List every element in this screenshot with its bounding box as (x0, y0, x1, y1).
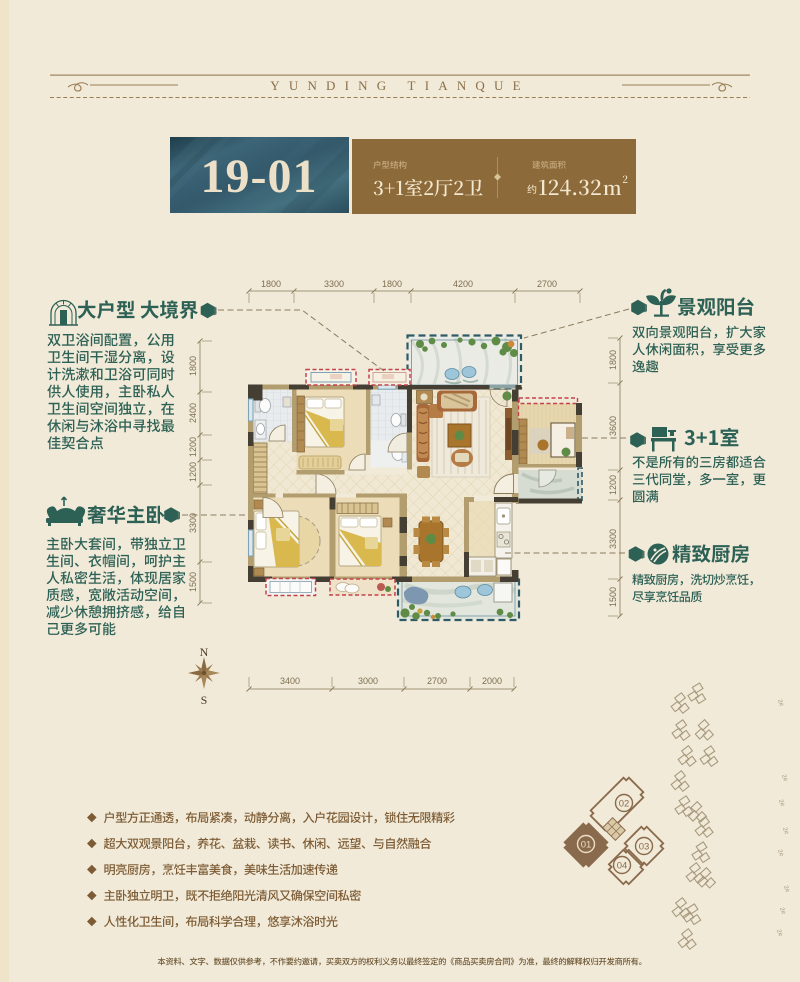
svg-text:2700: 2700 (427, 676, 447, 686)
svg-text:3300: 3300 (608, 529, 618, 549)
svg-text:2#: 2# (780, 774, 788, 783)
svg-text:2000: 2000 (482, 676, 502, 686)
svg-text:01: 01 (581, 840, 592, 851)
svg-text:1800: 1800 (608, 350, 618, 370)
svg-text:1200: 1200 (188, 437, 198, 457)
svg-text:N: N (200, 645, 209, 659)
svg-text:3300: 3300 (188, 513, 198, 533)
svg-text:3400: 3400 (280, 676, 300, 686)
svg-text:2#: 2# (775, 929, 783, 938)
svg-text:03: 03 (639, 842, 650, 853)
svg-text:2#: 2# (777, 799, 785, 808)
svg-text:2#: 2# (782, 885, 790, 894)
svg-text:1800: 1800 (382, 279, 402, 289)
svg-text:04: 04 (617, 861, 628, 872)
svg-text:1800: 1800 (188, 356, 198, 376)
svg-text:2#: 2# (778, 907, 786, 916)
svg-text:1200: 1200 (608, 475, 618, 495)
svg-text:2#: 2# (776, 849, 784, 858)
svg-text:1200: 1200 (188, 462, 198, 482)
svg-text:S: S (201, 693, 208, 707)
svg-text:1500: 1500 (608, 587, 618, 607)
svg-text:4200: 4200 (453, 279, 473, 289)
svg-text:3300: 3300 (324, 279, 344, 289)
svg-text:2#: 2# (776, 699, 784, 708)
svg-text:1800: 1800 (261, 279, 281, 289)
svg-text:1500: 1500 (188, 572, 198, 592)
svg-text:2700: 2700 (537, 279, 557, 289)
svg-text:3000: 3000 (358, 676, 378, 686)
svg-text:2#: 2# (781, 827, 789, 836)
svg-text:2400: 2400 (188, 403, 198, 423)
svg-text:02: 02 (619, 799, 630, 810)
svg-text:3600: 3600 (608, 416, 618, 436)
